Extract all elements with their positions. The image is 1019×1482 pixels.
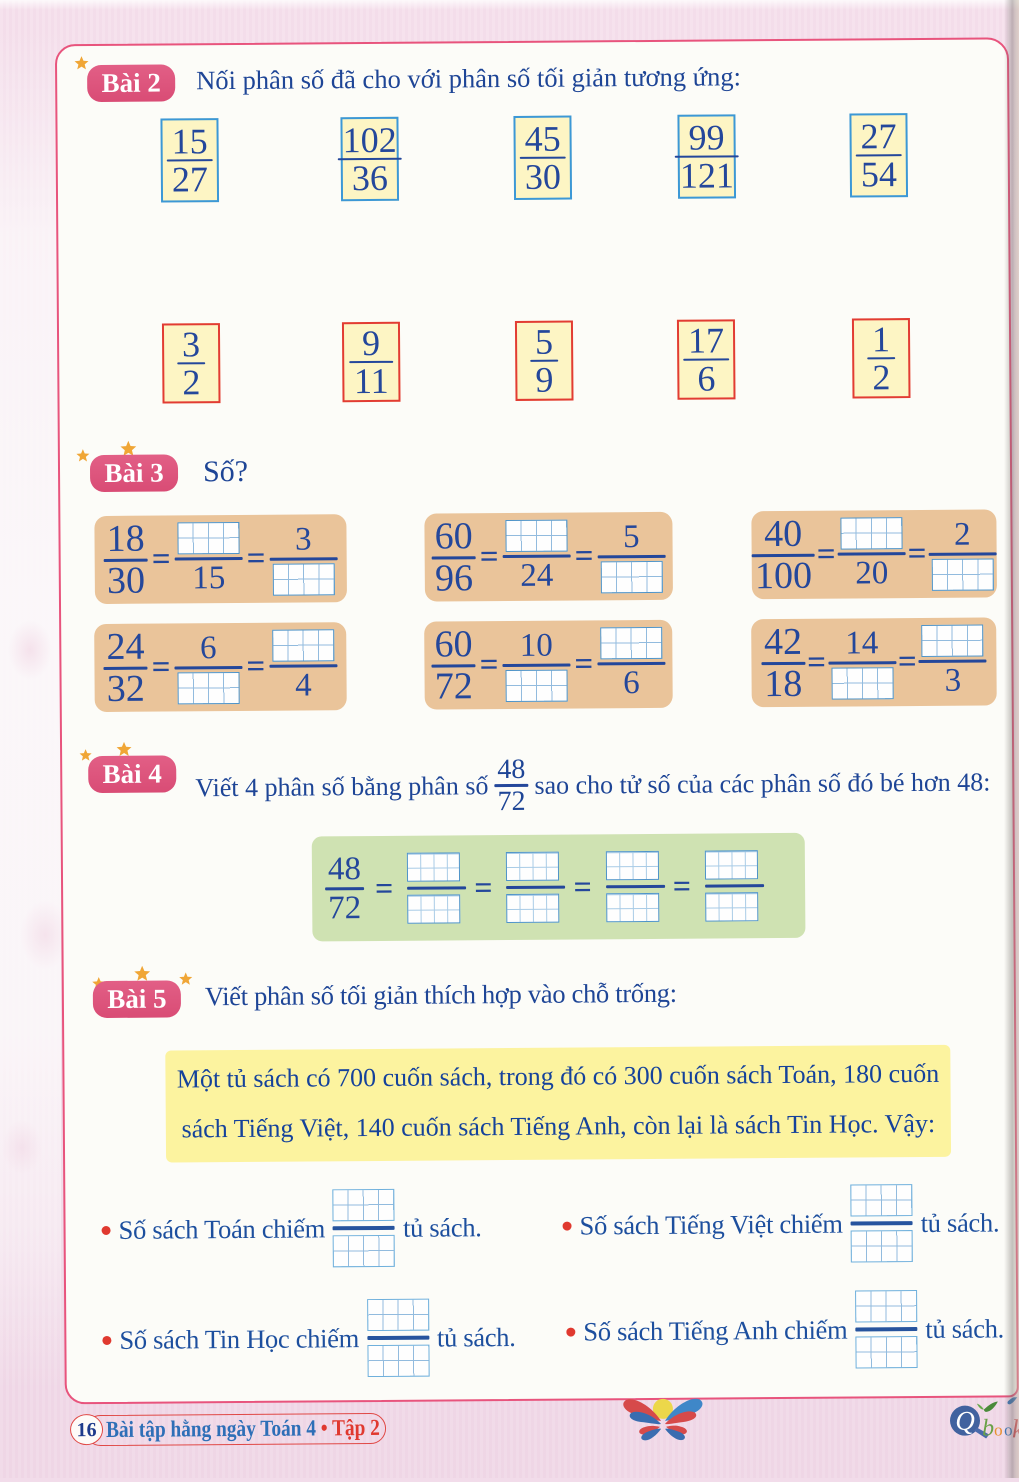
svg-text:Q: Q	[955, 1406, 975, 1436]
svg-text:o: o	[994, 1420, 1003, 1439]
svg-text:b: b	[982, 1415, 994, 1441]
